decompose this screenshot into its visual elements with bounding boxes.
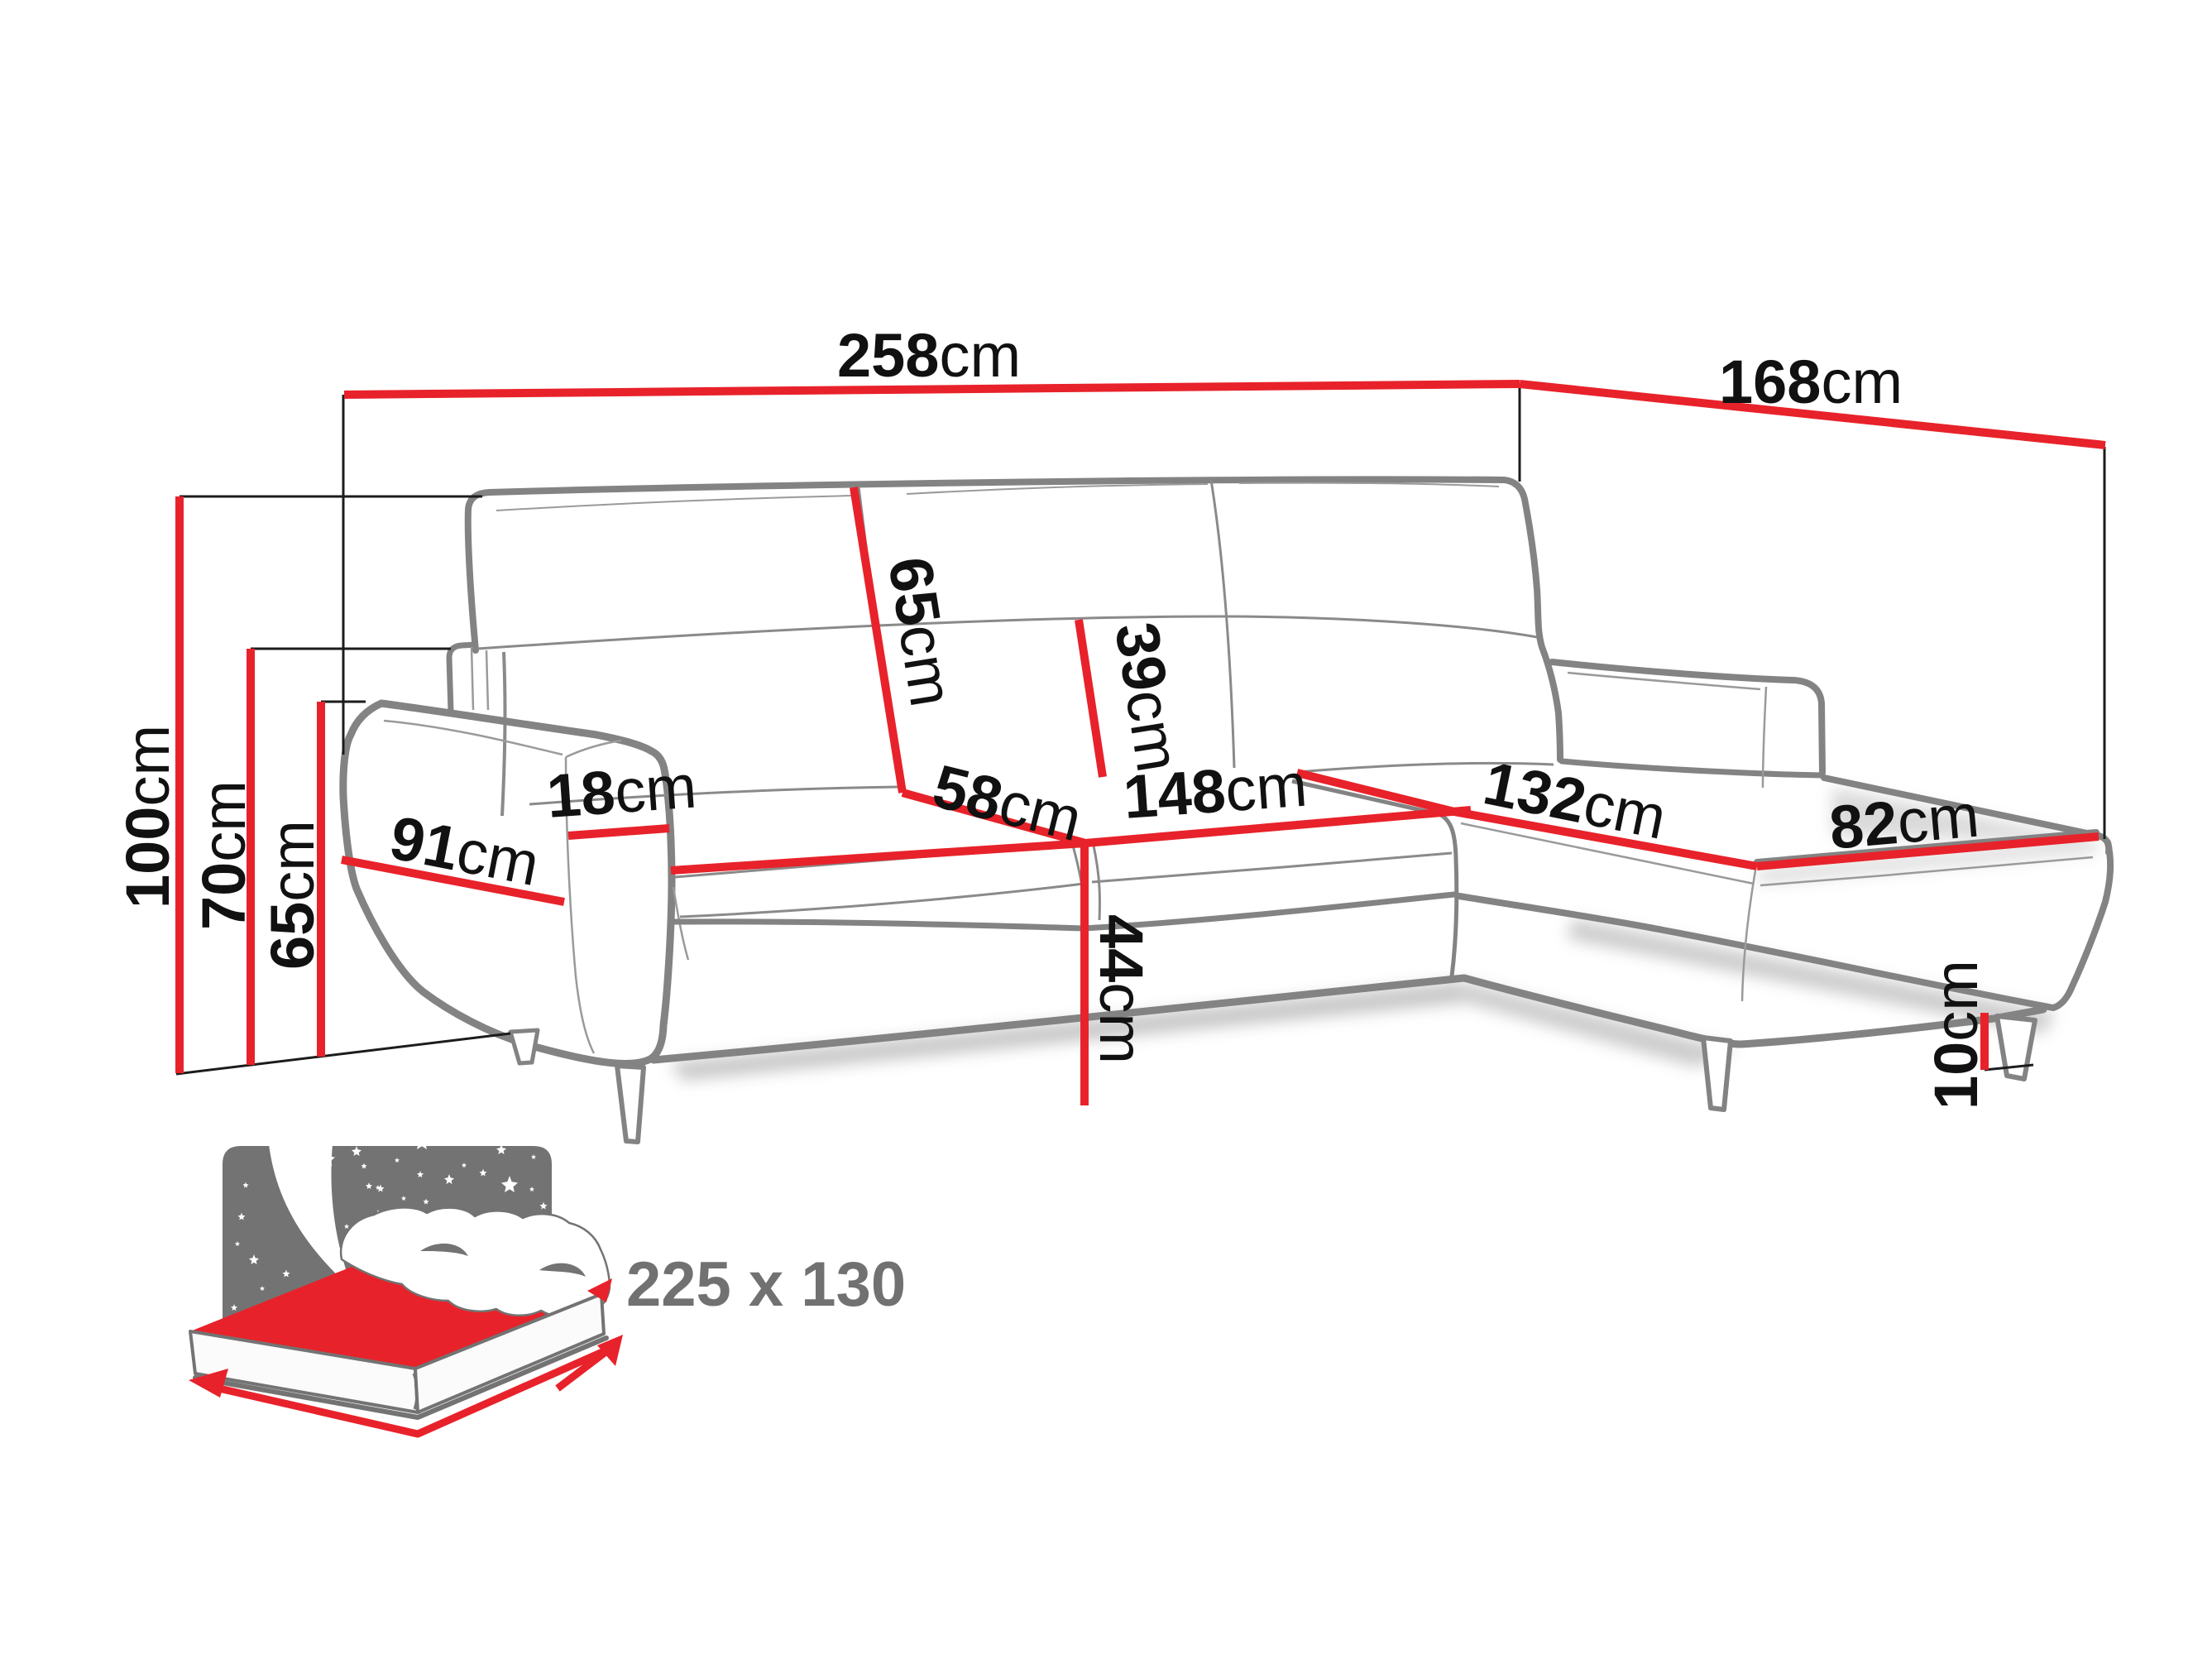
svg-text:168cm: 168cm bbox=[1719, 348, 1903, 416]
svg-text:258cm: 258cm bbox=[837, 321, 1021, 390]
svg-text:82cm: 82cm bbox=[1827, 780, 1982, 861]
svg-text:100cm: 100cm bbox=[113, 725, 182, 909]
svg-text:65cm: 65cm bbox=[258, 820, 327, 970]
svg-text:44cm: 44cm bbox=[1087, 914, 1156, 1064]
svg-text:18cm: 18cm bbox=[544, 752, 698, 831]
svg-text:148cm: 148cm bbox=[1121, 750, 1309, 832]
svg-text:10cm: 10cm bbox=[1922, 960, 1990, 1110]
svg-text:225 x 130: 225 x 130 bbox=[626, 1249, 906, 1320]
svg-text:70cm: 70cm bbox=[189, 780, 258, 930]
